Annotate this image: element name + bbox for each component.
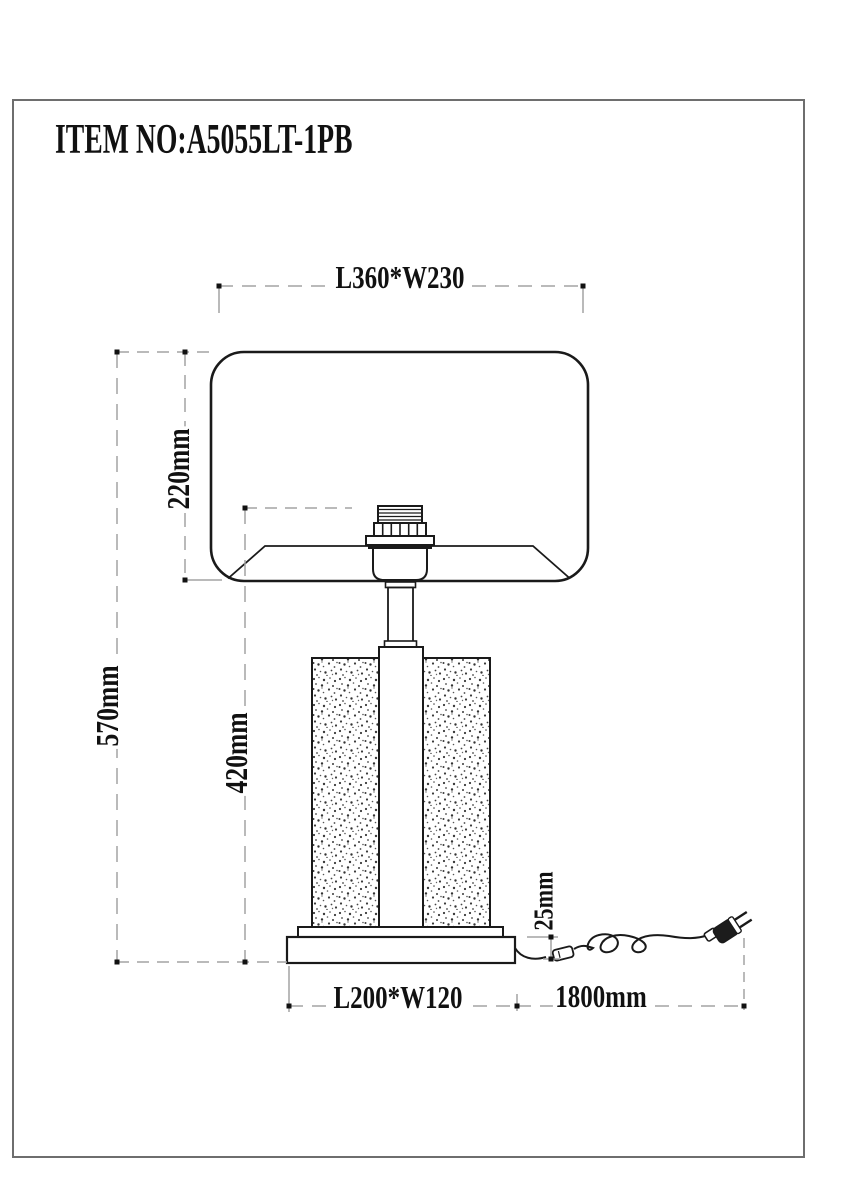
socket-seat-line: [368, 546, 432, 550]
socket-ring: [374, 523, 426, 536]
base-plate: [287, 937, 515, 963]
power-cord-coil: [574, 934, 708, 952]
dim-cord-length-label: 1800mm: [553, 980, 649, 1012]
drawing-sheet: ITEM NO:A5055LT-1PB L360*W230 220mm 570m…: [0, 0, 848, 1200]
dim-base-thickness-label: 25mm: [531, 869, 558, 933]
plug-pin-bottom: [740, 920, 752, 928]
dim-body-height-label: 420mm: [220, 710, 252, 796]
power-plug: [704, 908, 755, 944]
stem-tube: [388, 588, 413, 642]
socket-washer: [366, 536, 434, 545]
socket-cup: [373, 547, 427, 580]
base-step: [298, 927, 503, 937]
socket-thread: [378, 506, 422, 523]
item-number: ITEM NO:A5055LT-1PB: [53, 119, 354, 161]
lamp-technical-drawing: [0, 0, 848, 1200]
dim-shade-height-label: 220mm: [162, 426, 194, 512]
plug-pin-top: [735, 912, 747, 920]
power-cord-segment-1: [515, 948, 546, 959]
dim-shade-size-label: L360*W230: [333, 261, 467, 293]
center-pole: [379, 647, 423, 929]
dim-total-height-label: 570mm: [91, 663, 123, 749]
dim-base-size-label: L200*W120: [331, 981, 465, 1013]
